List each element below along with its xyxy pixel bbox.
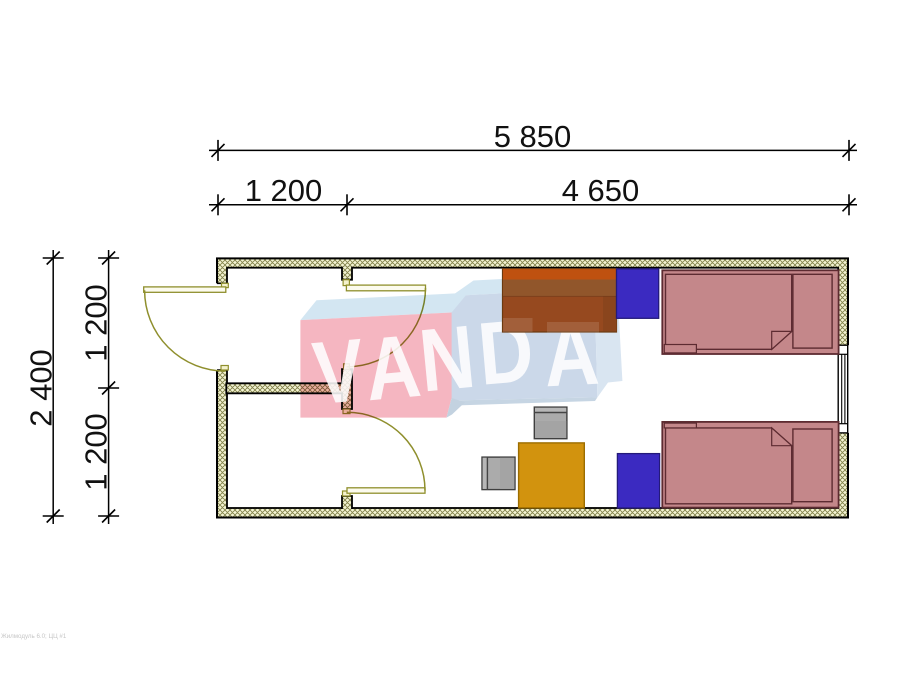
svg-text:N: N bbox=[415, 306, 479, 411]
svg-text:5 850: 5 850 bbox=[494, 119, 572, 154]
svg-text:1 200: 1 200 bbox=[245, 173, 323, 208]
svg-text:2 400: 2 400 bbox=[24, 349, 59, 427]
svg-text:1 200: 1 200 bbox=[79, 413, 114, 491]
svg-text:V: V bbox=[309, 319, 368, 423]
svg-text:4 650: 4 650 bbox=[562, 173, 640, 208]
svg-text:1 200: 1 200 bbox=[79, 284, 114, 362]
svg-text:Жилмодуль 6.0; ЦЦ #1: Жилмодуль 6.0; ЦЦ #1 bbox=[1, 633, 67, 640]
svg-text:A: A bbox=[361, 315, 424, 420]
